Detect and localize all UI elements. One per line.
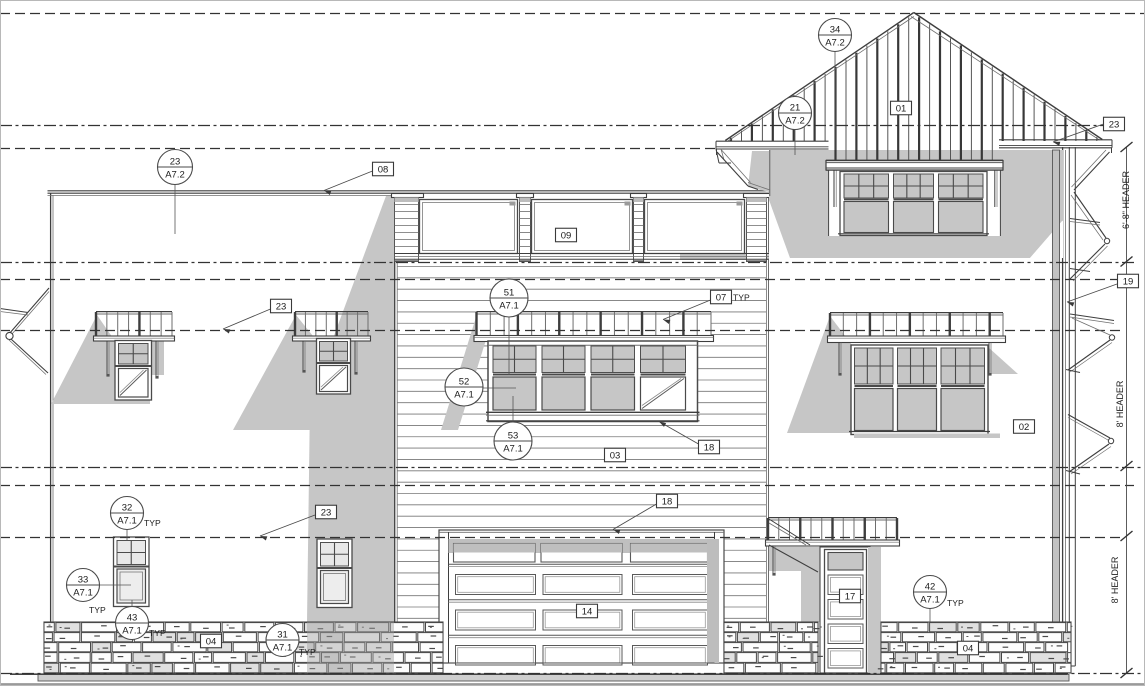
svg-text:TYP: TYP <box>947 598 964 608</box>
svg-text:TYP: TYP <box>144 518 161 528</box>
svg-text:23: 23 <box>1109 119 1120 130</box>
svg-text:34: 34 <box>830 24 841 35</box>
svg-text:51: 51 <box>504 287 515 298</box>
svg-text:18: 18 <box>704 442 715 453</box>
svg-text:23: 23 <box>170 156 181 167</box>
svg-text:A7.1: A7.1 <box>454 389 474 400</box>
svg-text:42: 42 <box>925 581 936 592</box>
svg-text:8' HEADER: 8' HEADER <box>1110 556 1120 603</box>
svg-text:43: 43 <box>127 612 138 623</box>
svg-text:A7.1: A7.1 <box>920 594 940 605</box>
svg-text:6'-8" HEADER: 6'-8" HEADER <box>1121 171 1131 229</box>
svg-text:52: 52 <box>459 376 470 387</box>
svg-text:A7.2: A7.2 <box>785 115 805 126</box>
svg-text:A7.2: A7.2 <box>165 169 185 180</box>
svg-text:23: 23 <box>321 507 332 518</box>
svg-text:04: 04 <box>963 643 974 654</box>
svg-text:19: 19 <box>1123 276 1134 287</box>
svg-text:8' HEADER: 8' HEADER <box>1115 380 1125 427</box>
svg-text:14: 14 <box>582 606 593 617</box>
svg-text:TYP: TYP <box>299 647 316 657</box>
svg-text:21: 21 <box>790 102 801 113</box>
svg-text:23: 23 <box>276 301 287 312</box>
svg-text:TYP: TYP <box>733 292 750 302</box>
svg-text:A7.1: A7.1 <box>73 587 93 598</box>
svg-text:18: 18 <box>662 496 673 507</box>
svg-text:01: 01 <box>896 103 907 114</box>
svg-text:09: 09 <box>561 230 572 241</box>
svg-text:32: 32 <box>122 502 133 513</box>
svg-text:A7.2: A7.2 <box>825 37 845 48</box>
svg-text:02: 02 <box>1019 422 1030 433</box>
svg-text:A7.1: A7.1 <box>273 642 293 653</box>
svg-text:08: 08 <box>378 164 389 175</box>
svg-text:33: 33 <box>78 574 89 585</box>
svg-text:53: 53 <box>508 430 519 441</box>
svg-text:A7.1: A7.1 <box>117 515 137 526</box>
svg-text:A7.1: A7.1 <box>503 443 523 454</box>
svg-text:04: 04 <box>206 636 217 647</box>
svg-text:31: 31 <box>277 629 288 640</box>
svg-text:TYP: TYP <box>89 605 106 615</box>
svg-text:17: 17 <box>845 591 856 602</box>
svg-text:A7.1: A7.1 <box>499 300 519 311</box>
svg-text:TYP: TYP <box>149 628 166 638</box>
svg-text:A7.1: A7.1 <box>122 625 142 636</box>
svg-text:07: 07 <box>716 292 727 303</box>
svg-text:03: 03 <box>610 450 621 461</box>
